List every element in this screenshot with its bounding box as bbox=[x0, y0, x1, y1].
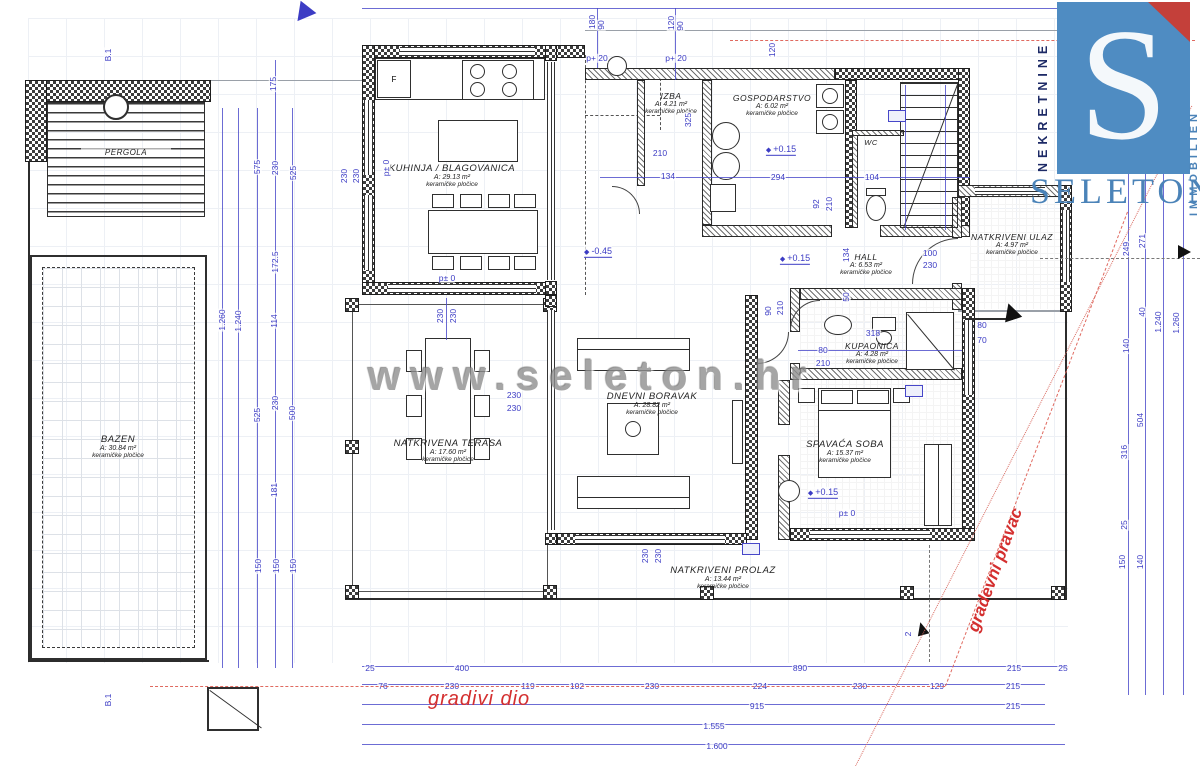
room-floor: keramičke pločice bbox=[712, 110, 832, 117]
floor-plan-canvas: F bbox=[0, 0, 1200, 766]
room-area: A: 6.02 m² bbox=[712, 103, 832, 110]
wall-segment bbox=[25, 80, 47, 162]
room-name: NATKRIVENA TERASA bbox=[373, 438, 523, 449]
dim-label: 316 bbox=[1120, 444, 1129, 460]
pillow bbox=[857, 390, 889, 404]
room-area: A: 29.13 m² bbox=[367, 174, 537, 181]
room-area: A: 4.21 m² bbox=[626, 101, 716, 108]
sofa bbox=[577, 476, 690, 509]
dim-label: 504 bbox=[1136, 412, 1145, 428]
room-floor: keramičke pločice bbox=[63, 452, 173, 459]
plot-line-bottom-left bbox=[28, 660, 209, 662]
window-segment bbox=[547, 62, 555, 280]
dim-label: 25 bbox=[1120, 519, 1129, 530]
column bbox=[543, 585, 557, 599]
wall-segment bbox=[702, 225, 832, 237]
dimension-line bbox=[362, 744, 1065, 745]
stove-burner bbox=[470, 64, 485, 79]
room-area: A: 30.84 m² bbox=[63, 445, 173, 452]
window-segment bbox=[810, 530, 930, 539]
room-area: A: 17.60 m² bbox=[373, 449, 523, 456]
axis-line bbox=[1040, 258, 1200, 259]
wall-segment bbox=[800, 288, 962, 300]
window-segment bbox=[547, 310, 555, 530]
room-floor: keramičke pločice bbox=[577, 409, 727, 416]
column bbox=[345, 298, 359, 312]
dimension-line bbox=[292, 108, 293, 668]
dimension-line bbox=[600, 177, 970, 178]
room-label-kupaonica: KUPAONICA A: 4.28 m² keramičke pločice bbox=[812, 341, 932, 365]
room-area: A: 28.82 m² bbox=[577, 402, 727, 409]
tv-unit bbox=[732, 400, 743, 464]
window-segment bbox=[964, 320, 973, 395]
room-floor: keramičke pločice bbox=[812, 358, 932, 365]
utility-sink bbox=[710, 184, 736, 212]
window-segment bbox=[388, 284, 536, 293]
toilet-tank bbox=[866, 188, 886, 196]
room-floor: keramičke pločice bbox=[780, 457, 910, 464]
plot-line bbox=[209, 80, 362, 81]
room-area: A: 4.28 m² bbox=[812, 351, 932, 358]
pergola-slats bbox=[47, 102, 205, 217]
plot-line-top bbox=[585, 30, 1065, 31]
dimension-line bbox=[275, 60, 276, 668]
washer bbox=[712, 122, 740, 150]
room-label-spavaca-soba: SPAVAĆA SOBA A: 15.37 m² keramičke ploči… bbox=[780, 439, 910, 464]
bed-line bbox=[818, 410, 891, 411]
open-plan-boundary bbox=[585, 55, 586, 295]
room-name: KUHINJA / BLAGOVANICA bbox=[367, 163, 537, 174]
room-label-izba: IZBA A: 4.21 m² keramičke pločice bbox=[626, 91, 716, 115]
toilet-tank bbox=[872, 317, 896, 331]
stove-burner bbox=[502, 64, 517, 79]
room-name: BAZEN bbox=[63, 434, 173, 445]
dimension-line bbox=[222, 108, 223, 668]
sink bbox=[824, 315, 852, 335]
room-name: NATKRIVENI PROLAZ bbox=[643, 565, 803, 576]
dimension-line bbox=[362, 8, 1068, 9]
dimension-line bbox=[675, 8, 676, 80]
boiler bbox=[607, 56, 627, 76]
dimension-line bbox=[238, 108, 239, 668]
dim-label: 150 bbox=[1118, 554, 1127, 570]
stove-burner bbox=[502, 82, 517, 97]
column bbox=[345, 440, 359, 454]
dim-label: 1.240 bbox=[1154, 310, 1163, 333]
seleton-logo: NEKRETNINE S IMMOBILIEN SELETON bbox=[1028, 0, 1200, 218]
logo-square: S bbox=[1057, 2, 1190, 174]
column bbox=[900, 586, 914, 600]
wall-segment bbox=[545, 295, 557, 307]
watermark-text: www.seleton.hr bbox=[368, 352, 817, 400]
wall-segment bbox=[545, 281, 557, 295]
fridge: F bbox=[377, 60, 411, 98]
fridge-label: F bbox=[392, 75, 397, 84]
room-name: SPAVAĆA SOBA bbox=[780, 439, 910, 450]
chair bbox=[514, 194, 536, 208]
dim-label: B.1 bbox=[104, 693, 113, 708]
dryer bbox=[712, 152, 740, 180]
room-name: IZBA bbox=[626, 91, 716, 101]
chair bbox=[432, 256, 454, 270]
logo-letter: S bbox=[1057, 0, 1190, 172]
chair bbox=[460, 256, 482, 270]
drawing-tag bbox=[905, 385, 923, 397]
wardrobe-line bbox=[938, 444, 939, 526]
logo-left-text: NEKRETNINE bbox=[1036, 2, 1050, 172]
room-label-bazen: BAZEN A: 30.84 m² keramičke pločice bbox=[63, 434, 173, 459]
window-segment bbox=[575, 535, 725, 544]
room-floor: keramičke pločice bbox=[947, 249, 1077, 256]
drawing-tag bbox=[742, 543, 760, 555]
room-floor: keramičke pločice bbox=[626, 108, 716, 115]
chair bbox=[432, 194, 454, 208]
room-label-pergola: PERGOLA bbox=[81, 148, 171, 157]
room-name: KUPAONICA bbox=[812, 341, 932, 351]
wall-segment bbox=[835, 68, 970, 80]
room-area: A: 4.97 m² bbox=[947, 242, 1077, 249]
room-floor: keramičke pločice bbox=[373, 456, 523, 463]
dim-label: 1.260 bbox=[1172, 311, 1181, 334]
wall-segment bbox=[545, 45, 557, 61]
room-area: A: 15.37 m² bbox=[780, 450, 910, 457]
logo-wordmark: SELETON bbox=[1030, 170, 1200, 212]
dimension-line bbox=[905, 85, 906, 230]
dimension-line bbox=[597, 8, 598, 68]
room-label-natkriveni-prolaz: NATKRIVENI PROLAZ A: 13.44 m² keramičke … bbox=[643, 565, 803, 590]
roof-overhang-dash bbox=[585, 115, 660, 116]
window-segment bbox=[400, 47, 535, 56]
column bbox=[345, 585, 359, 599]
building-area-line bbox=[150, 686, 945, 687]
wall-segment bbox=[545, 533, 557, 545]
room-name: HALL bbox=[831, 252, 901, 262]
room-name: GOSPODARSTVO bbox=[712, 93, 832, 103]
axis-arrow bbox=[1178, 245, 1191, 259]
wall-segment bbox=[852, 130, 904, 136]
dimension-line bbox=[362, 724, 1055, 725]
dimension-line bbox=[257, 108, 258, 668]
chair bbox=[778, 480, 800, 502]
dimension-line bbox=[362, 684, 1045, 685]
dimension-line bbox=[362, 666, 1068, 667]
stove-burner bbox=[470, 82, 485, 97]
room-label-hall: HALL A: 6.53 m² keramičke pločice bbox=[831, 252, 901, 276]
table-decor bbox=[625, 421, 641, 437]
window-segment bbox=[364, 195, 373, 270]
room-floor: keramičke pločice bbox=[643, 583, 803, 590]
chair bbox=[514, 256, 536, 270]
pillow bbox=[821, 390, 853, 404]
chair bbox=[488, 256, 510, 270]
kitchen-island bbox=[438, 120, 518, 162]
pergola-detail-circle bbox=[103, 94, 129, 120]
dimension-line bbox=[446, 298, 447, 340]
drawing-tag bbox=[888, 110, 906, 122]
room-name: WC bbox=[856, 138, 886, 147]
chair bbox=[488, 194, 510, 208]
room-name: PERGOLA bbox=[81, 148, 171, 157]
axis-line bbox=[929, 545, 930, 662]
room-label-gospodarstvo: GOSPODARSTVO A: 6.02 m² keramičke pločic… bbox=[712, 93, 832, 117]
gradivi-dio-label: gradivi dio bbox=[428, 688, 530, 711]
room-label-kuhinja: KUHINJA / BLAGOVANICA A: 29.13 m² kerami… bbox=[367, 163, 537, 188]
room-label-wc: WC bbox=[856, 138, 886, 147]
dim-label: 140 bbox=[1136, 554, 1145, 570]
sofa-seat-line bbox=[577, 497, 690, 498]
room-label-natkrivena-terasa: NATKRIVENA TERASA A: 17.60 m² keramičke … bbox=[373, 438, 523, 463]
dimension-line bbox=[945, 85, 946, 230]
room-floor: keramičke pločice bbox=[367, 181, 537, 188]
dining-table bbox=[428, 210, 538, 254]
room-area: A: 13.44 m² bbox=[643, 576, 803, 583]
column bbox=[1051, 586, 1065, 600]
sofa-seat-line bbox=[577, 349, 690, 350]
room-name: NATKRIVENI ULAZ bbox=[947, 232, 1077, 242]
room-label-natkriveni-ulaz: NATKRIVENI ULAZ A: 4.97 m² keramičke plo… bbox=[947, 232, 1077, 256]
room-area: A: 6.53 m² bbox=[831, 262, 901, 269]
room-floor: keramičke pločice bbox=[831, 269, 901, 276]
chair bbox=[460, 194, 482, 208]
toilet bbox=[866, 195, 886, 221]
